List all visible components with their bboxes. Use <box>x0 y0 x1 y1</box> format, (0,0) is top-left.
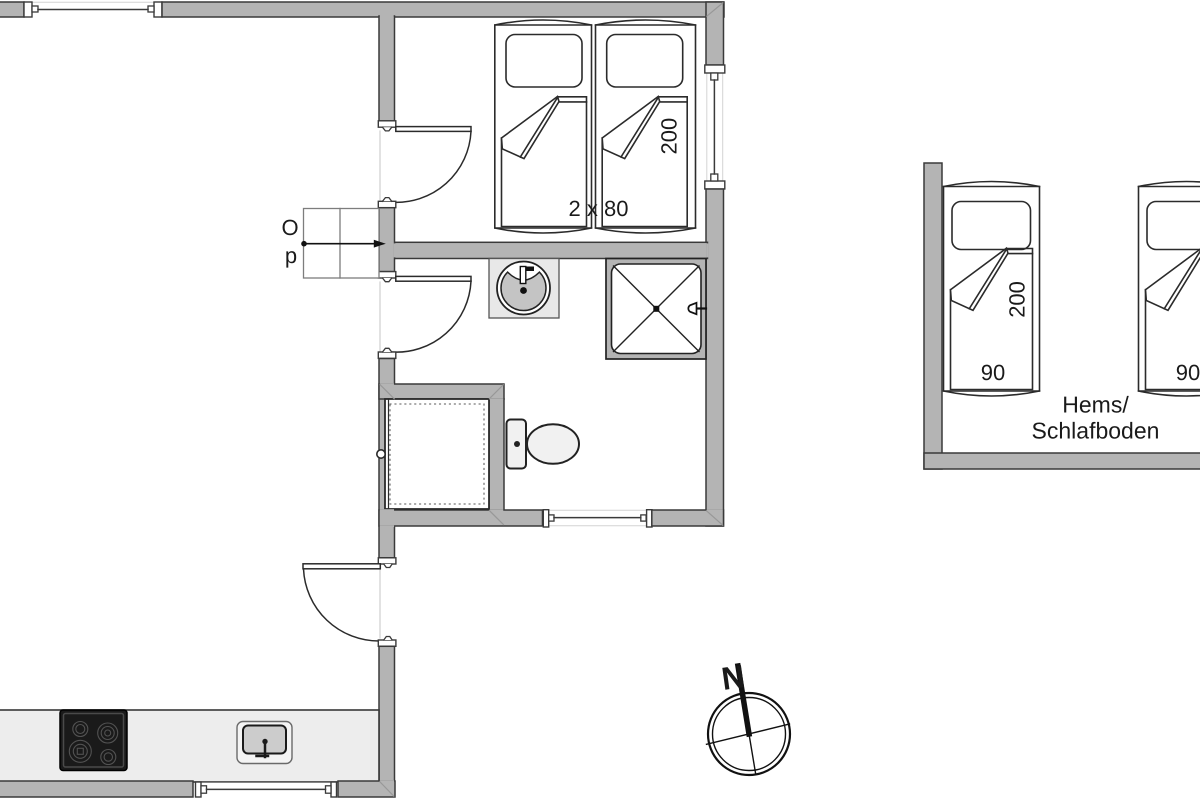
svg-text:N: N <box>719 658 747 697</box>
svg-text:90: 90 <box>1176 360 1200 385</box>
svg-text:2 x 80: 2 x 80 <box>569 196 629 221</box>
svg-text:p: p <box>285 243 297 268</box>
svg-text:O: O <box>281 215 298 240</box>
svg-text:Schlafboden: Schlafboden <box>1032 418 1160 444</box>
svg-text:200: 200 <box>1005 281 1030 318</box>
svg-text:Hems/: Hems/ <box>1062 392 1129 418</box>
svg-text:200: 200 <box>657 118 682 155</box>
svg-text:90: 90 <box>981 360 1005 385</box>
